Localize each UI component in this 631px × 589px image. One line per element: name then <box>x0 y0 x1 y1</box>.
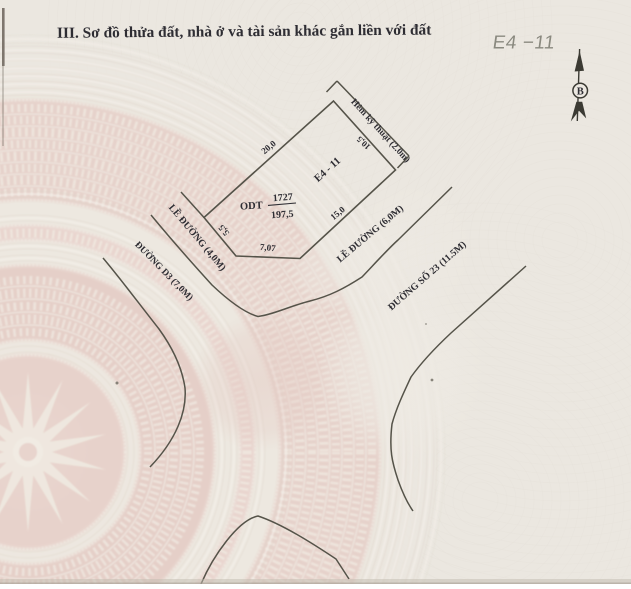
svg-text:E4 −11: E4 −11 <box>491 33 556 54</box>
svg-text:7,07: 7,07 <box>259 242 276 254</box>
svg-text:ODT: ODT <box>240 200 263 212</box>
svg-text:B: B <box>577 87 584 98</box>
svg-text:III. Sơ đồ thửa đất, nhà ở và: III. Sơ đồ thửa đất, nhà ở và tài sản kh… <box>57 22 432 42</box>
svg-text:1727: 1727 <box>272 192 293 204</box>
svg-text:197,5: 197,5 <box>271 209 294 222</box>
